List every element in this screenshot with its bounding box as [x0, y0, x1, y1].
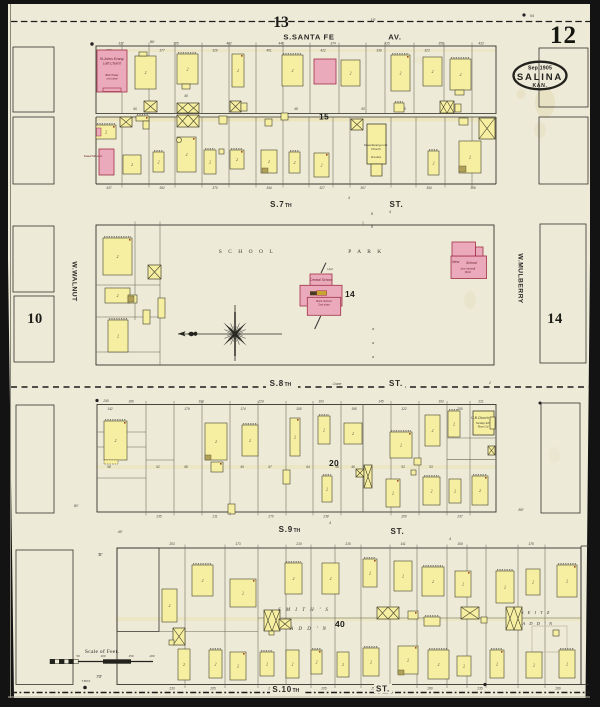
svg-text:4: 4: [389, 210, 391, 214]
svg-text:Church: Church: [371, 147, 381, 151]
svg-text:2: 2: [432, 70, 434, 74]
svg-text:200: 200: [148, 654, 154, 658]
svg-text:School: School: [466, 261, 477, 265]
svg-text:374: 374: [330, 42, 336, 46]
svg-text:205: 205: [320, 687, 327, 691]
svg-text:53: 53: [429, 465, 433, 469]
svg-text:2: 2: [158, 161, 160, 165]
svg-text:2: 2: [187, 68, 189, 72]
svg-text:145: 145: [378, 400, 384, 404]
svg-text:2: 2: [432, 429, 434, 433]
svg-text:45′: 45′: [118, 530, 123, 534]
svg-text:8: 8: [371, 225, 373, 229]
svg-text:215: 215: [344, 542, 351, 546]
svg-text:(not named): (not named): [461, 267, 476, 271]
svg-text:2: 2: [249, 439, 251, 443]
svg-text:Swed.Mission: Swed.Mission: [84, 154, 103, 158]
svg-text:326: 326: [212, 49, 218, 53]
svg-text:141: 141: [400, 542, 406, 546]
svg-text:200: 200: [400, 515, 407, 519]
svg-text:253: 253: [168, 542, 175, 546]
svg-text:a: a: [372, 327, 374, 331]
svg-text:221: 221: [477, 400, 484, 404]
svg-text:80′: 80′: [518, 507, 523, 512]
svg-text:2: 2: [266, 663, 268, 667]
svg-text:2: 2: [496, 663, 498, 667]
svg-text:199: 199: [198, 400, 204, 404]
svg-text:150: 150: [128, 654, 133, 658]
svg-text:14: 14: [345, 289, 355, 299]
svg-text:344: 344: [266, 186, 272, 190]
svg-text:266: 266: [554, 687, 561, 691]
svg-text:255: 255: [456, 407, 463, 411]
svg-text:S.8: S.8: [270, 379, 284, 388]
svg-text:433: 433: [478, 42, 484, 46]
svg-text:2: 2: [400, 72, 402, 76]
svg-text:TH: TH: [294, 528, 301, 534]
svg-text:New: New: [452, 260, 460, 264]
svg-text:2: 2: [242, 592, 244, 596]
svg-text:70′: 70′: [96, 674, 102, 679]
svg-text:2: 2: [115, 439, 117, 443]
svg-text:A D D ’ N: A D D ’ N: [521, 621, 553, 626]
svg-text:15′: 15′: [370, 17, 375, 22]
svg-text:Crane: Crane: [333, 382, 342, 386]
svg-text:174: 174: [240, 407, 246, 411]
svg-text:2: 2: [294, 161, 296, 165]
svg-text:2: 2: [352, 432, 354, 436]
svg-text:4: 4: [348, 196, 350, 200]
svg-text:2: 2: [268, 160, 270, 164]
svg-text:210: 210: [295, 542, 302, 546]
svg-text:2: 2: [117, 255, 119, 259]
svg-text:2: 2: [402, 575, 404, 579]
svg-text:367: 367: [360, 186, 366, 190]
svg-text:2: 2: [202, 579, 204, 583]
svg-text:370: 370: [212, 186, 218, 190]
svg-text:2: 2: [433, 162, 435, 166]
svg-text:8: 8: [371, 212, 373, 216]
svg-text:2: 2: [131, 163, 133, 167]
svg-text:4: 4: [329, 521, 331, 525]
svg-text:179: 179: [184, 407, 190, 411]
svg-text:50: 50: [76, 654, 80, 658]
svg-text:422: 422: [320, 49, 326, 53]
svg-text:2: 2: [532, 581, 534, 585]
svg-text:280: 280: [426, 687, 433, 691]
svg-text:20: 20: [329, 458, 339, 468]
svg-text:323: 323: [424, 49, 430, 53]
svg-text:ST.: ST.: [376, 685, 390, 694]
svg-text:2: 2: [292, 663, 294, 667]
svg-text:233: 233: [168, 687, 175, 691]
svg-text:Central School: Central School: [310, 278, 332, 282]
svg-text:St.Lukes: St.Lukes: [371, 155, 382, 159]
svg-text:2: 2: [183, 663, 185, 667]
svg-text:Luth.Church: Luth.Church: [103, 62, 122, 66]
svg-text:240: 240: [102, 399, 109, 403]
svg-text:U.B.Church: U.B.Church: [471, 416, 489, 420]
svg-text:2: 2: [453, 423, 455, 427]
svg-text:St.Johns Evang.: St.Johns Evang.: [100, 57, 125, 61]
svg-text:2: 2: [215, 440, 217, 444]
svg-text:4: 4: [449, 537, 451, 541]
svg-text:68: 68: [184, 465, 188, 469]
svg-text:AV.: AV.: [388, 33, 402, 42]
svg-text:2: 2: [370, 661, 372, 665]
svg-text:2: 2: [342, 663, 344, 667]
svg-text:260: 260: [295, 407, 302, 411]
svg-text:S.7: S.7: [270, 200, 284, 209]
svg-text:64: 64: [530, 14, 534, 18]
svg-text:14: 14: [547, 311, 563, 327]
svg-text:238: 238: [322, 515, 329, 519]
svg-text:2: 2: [431, 490, 433, 494]
svg-text:48: 48: [294, 107, 298, 111]
svg-text:2: 2: [215, 663, 217, 667]
svg-text:2: 2: [169, 604, 171, 608]
svg-text:2: 2: [236, 158, 238, 162]
svg-text:356: 356: [438, 42, 444, 46]
svg-text:163: 163: [318, 400, 324, 404]
svg-text:A D D ’ N: A D D ’ N: [289, 627, 328, 632]
svg-text:S C H O O L: S C H O O L: [219, 249, 275, 255]
svg-text:205: 205: [209, 687, 216, 691]
svg-text:53: 53: [401, 465, 405, 469]
svg-text:186: 186: [128, 400, 134, 404]
svg-text:327: 327: [319, 186, 325, 190]
svg-text:15: 15: [319, 112, 329, 122]
svg-text:P A R K: P A R K: [348, 249, 384, 255]
svg-text:a: a: [372, 341, 374, 345]
svg-text:2: 2: [400, 444, 402, 448]
svg-text:437: 437: [106, 186, 112, 190]
svg-text:2: 2: [316, 661, 318, 665]
svg-text:S.SANTA FE: S.SANTA FE: [283, 33, 334, 42]
svg-text:2: 2: [369, 572, 371, 576]
svg-text:W.MULBERRY: W.MULBERRY: [517, 253, 524, 303]
svg-text:2: 2: [117, 294, 119, 298]
svg-text:2: 2: [292, 69, 294, 73]
svg-text:Brick: Brick: [465, 270, 472, 274]
svg-text:2: 2: [463, 665, 465, 669]
svg-text:2: 2: [392, 492, 394, 496]
svg-text:229: 229: [257, 400, 264, 404]
svg-text:2: 2: [326, 488, 328, 492]
svg-text:Sunday Sch: Sunday Sch: [476, 421, 491, 425]
svg-text:2: 2: [462, 583, 464, 587]
svg-text:S M I T H ’ S: S M I T H ’ S: [278, 608, 330, 613]
svg-text:195: 195: [351, 407, 357, 411]
svg-text:2: 2: [321, 164, 323, 168]
svg-text:159: 159: [457, 542, 463, 546]
svg-text:2: 2: [454, 490, 456, 494]
svg-text:Sep.1905: Sep.1905: [528, 66, 552, 72]
svg-text:173: 173: [235, 542, 241, 546]
svg-text:Hyd: Hyd: [327, 267, 333, 271]
svg-text:392: 392: [159, 186, 165, 190]
svg-text:S.9: S.9: [279, 525, 293, 534]
svg-text:ST.: ST.: [390, 200, 404, 209]
svg-text:50′: 50′: [74, 504, 79, 508]
svg-text:2: 2: [533, 664, 535, 668]
svg-text:2: 2: [432, 580, 434, 584]
svg-text:2: 2: [460, 73, 462, 77]
svg-text:211: 211: [211, 515, 217, 519]
svg-text:13: 13: [273, 14, 289, 31]
svg-text:2: 2: [186, 153, 188, 157]
svg-text:142: 142: [107, 407, 113, 411]
svg-text:235: 235: [155, 515, 162, 519]
svg-text:2: 2: [293, 577, 295, 581]
svg-text:2: 2: [566, 663, 568, 667]
svg-text:64: 64: [306, 465, 310, 469]
svg-text:100: 100: [100, 654, 105, 658]
svg-text:40: 40: [184, 94, 188, 98]
svg-text:KAN.: KAN.: [532, 83, 547, 89]
svg-text:ST.: ST.: [391, 527, 405, 536]
svg-text:not used: not used: [107, 77, 118, 81]
svg-text:a: a: [372, 355, 374, 359]
svg-text:2: 2: [237, 665, 239, 669]
svg-text:65: 65: [361, 107, 365, 111]
svg-text:2: 2: [117, 335, 119, 339]
svg-text:10: 10: [27, 311, 43, 327]
svg-text:66: 66: [133, 107, 137, 111]
svg-text:12: 12: [550, 22, 577, 49]
svg-text:2: 2: [479, 489, 481, 493]
svg-text:377: 377: [159, 49, 165, 53]
svg-text:317: 317: [118, 42, 124, 46]
svg-text:90: 90: [150, 39, 155, 44]
svg-text:58: 58: [107, 465, 111, 469]
svg-text:62: 62: [156, 465, 160, 469]
svg-text:2: 2: [105, 131, 107, 135]
svg-text:2: 2: [469, 156, 471, 160]
svg-text:235: 235: [476, 687, 483, 691]
svg-text:2: 2: [323, 429, 325, 433]
svg-text:2: 2: [237, 69, 239, 73]
svg-text:270: 270: [267, 515, 274, 519]
svg-text:67: 67: [268, 465, 272, 469]
svg-text:W.WALNUT: W.WALNUT: [71, 261, 78, 302]
svg-text:TH: TH: [285, 382, 292, 388]
svg-text:T.BOX: T.BOX: [82, 679, 91, 683]
svg-text:2: 2: [350, 72, 352, 76]
svg-text:163: 163: [438, 400, 444, 404]
svg-text:2: 2: [438, 663, 440, 667]
svg-text:2: 2: [145, 71, 147, 75]
svg-text:339: 339: [376, 49, 382, 53]
svg-text:46: 46: [351, 465, 355, 469]
svg-text:2: 2: [488, 381, 491, 385]
svg-text:TH: TH: [285, 203, 292, 209]
svg-text:2: 2: [209, 161, 211, 165]
svg-text:S E I T Z: S E I T Z: [521, 610, 550, 615]
svg-text:Room 2d: Room 2d: [478, 425, 489, 429]
svg-text:122: 122: [401, 407, 407, 411]
svg-text:305: 305: [173, 42, 179, 46]
svg-text:2: 2: [330, 577, 332, 581]
svg-text:40: 40: [335, 619, 345, 629]
svg-text:306: 306: [470, 186, 476, 190]
svg-text:ST.: ST.: [389, 379, 403, 388]
svg-text:354: 354: [426, 186, 432, 190]
svg-text:2: 2: [504, 586, 506, 590]
svg-text:2: 2: [294, 436, 296, 440]
svg-text:SALINA: SALINA: [517, 72, 563, 83]
svg-text:49: 49: [240, 465, 244, 469]
svg-text:401: 401: [266, 49, 272, 53]
svg-text:S.10: S.10: [272, 685, 292, 694]
svg-text:2: 2: [566, 580, 568, 584]
svg-text:237: 237: [456, 515, 463, 519]
svg-text:TH: TH: [293, 688, 300, 694]
svg-text:2nd story: 2nd story: [317, 303, 330, 307]
svg-text:2: 2: [407, 659, 409, 663]
svg-text:178: 178: [528, 542, 534, 546]
